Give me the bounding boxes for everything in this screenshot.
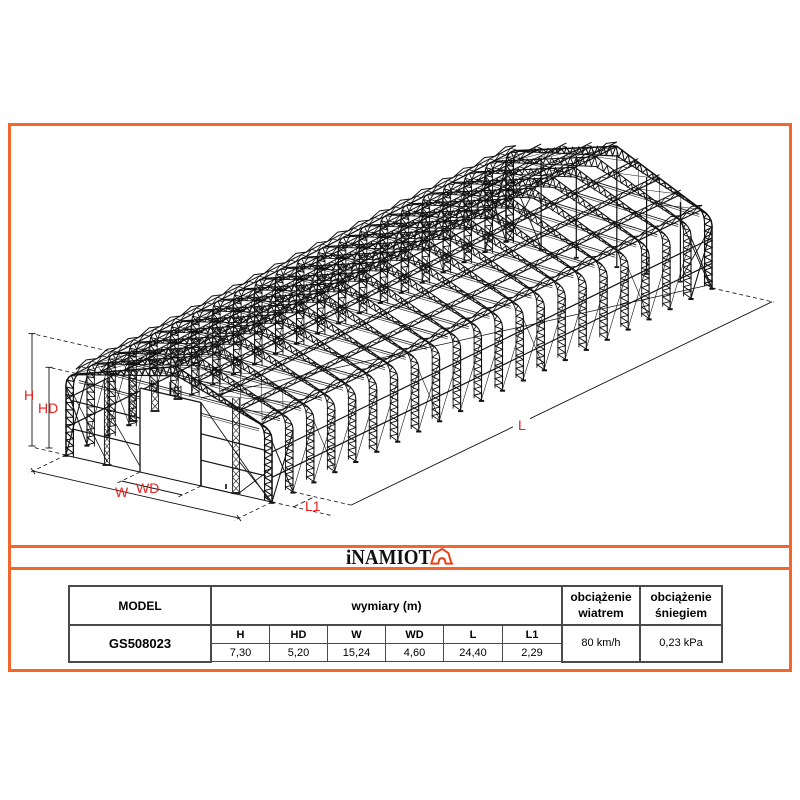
svg-text:W: W — [115, 484, 129, 500]
svg-text:H: H — [24, 387, 34, 403]
svg-text:WD: WD — [136, 480, 159, 496]
svg-text:HD: HD — [38, 400, 58, 416]
svg-text:L1: L1 — [305, 498, 321, 514]
svg-text:L: L — [518, 417, 526, 433]
